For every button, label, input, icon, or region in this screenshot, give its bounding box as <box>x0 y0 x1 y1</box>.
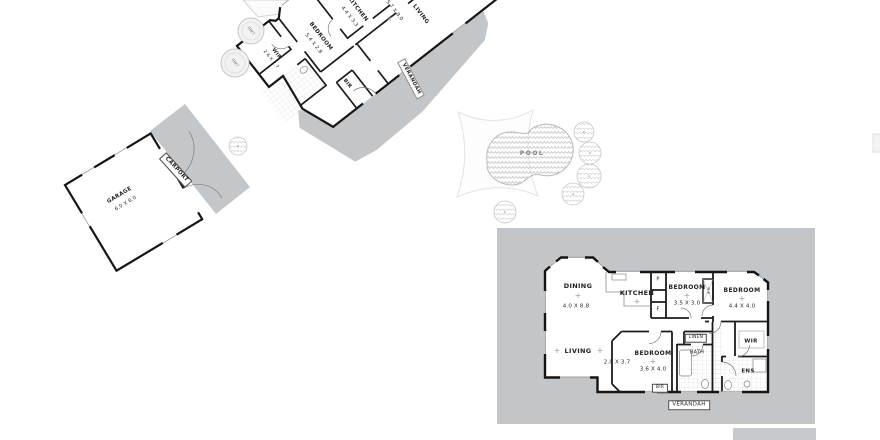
bedroom2-dims: 4.4 X 4.0 <box>729 304 756 310</box>
dining-dims: 4.0 X 8.8 <box>563 304 590 310</box>
rwt-tank-label: RWT <box>230 58 239 68</box>
living-label: LIVING <box>565 348 592 355</box>
living-dims: 2.0 X 3.7 <box>604 360 631 366</box>
light-point-icon: + <box>554 347 561 355</box>
carport-label: CARPORT <box>159 152 192 188</box>
cottage-living-label: LIVING <box>411 4 430 26</box>
pantry-label: P <box>656 278 659 283</box>
rwt-tank-label: RWT <box>246 26 255 36</box>
fridge-label: F <box>656 308 659 313</box>
light-point-icon: + <box>650 358 657 366</box>
cottage-bir-label: BIR <box>342 78 352 89</box>
labels-layer: KITCHEN 4.4 X 3.3 5.7 X 9.0 + LIVING BED… <box>0 0 880 440</box>
wir-label: WIR <box>744 339 757 345</box>
floorplan-canvas: KITCHEN 4.4 X 3.3 5.7 X 9.0 + LIVING BED… <box>0 0 880 440</box>
linen-label: LINEN <box>685 334 707 343</box>
kitchen-label: KITCHEN <box>620 290 654 297</box>
light-point-icon: + <box>739 295 746 303</box>
robe-label: BR <box>706 287 710 295</box>
bir-label: BIR <box>652 384 668 393</box>
light-point-icon: + <box>384 14 394 24</box>
light-point-icon: + <box>684 292 691 300</box>
bedroom3-dims: 3.6 X 4.0 <box>640 367 667 373</box>
pool-label: POOL <box>520 151 544 157</box>
light-point-icon: + <box>597 347 604 355</box>
main-verandah-label: VERANDAH <box>668 400 710 410</box>
light-point-icon: + <box>634 298 641 306</box>
ens-label: ENS <box>741 369 754 375</box>
bedroom1-dims: 3.5 X 3.0 <box>674 301 701 307</box>
light-point-icon: + <box>575 292 582 300</box>
bath-label: BATH <box>690 351 704 356</box>
cottage-verandah-label: VERANDAH <box>397 58 425 99</box>
dining-label: DINING <box>564 283 593 290</box>
